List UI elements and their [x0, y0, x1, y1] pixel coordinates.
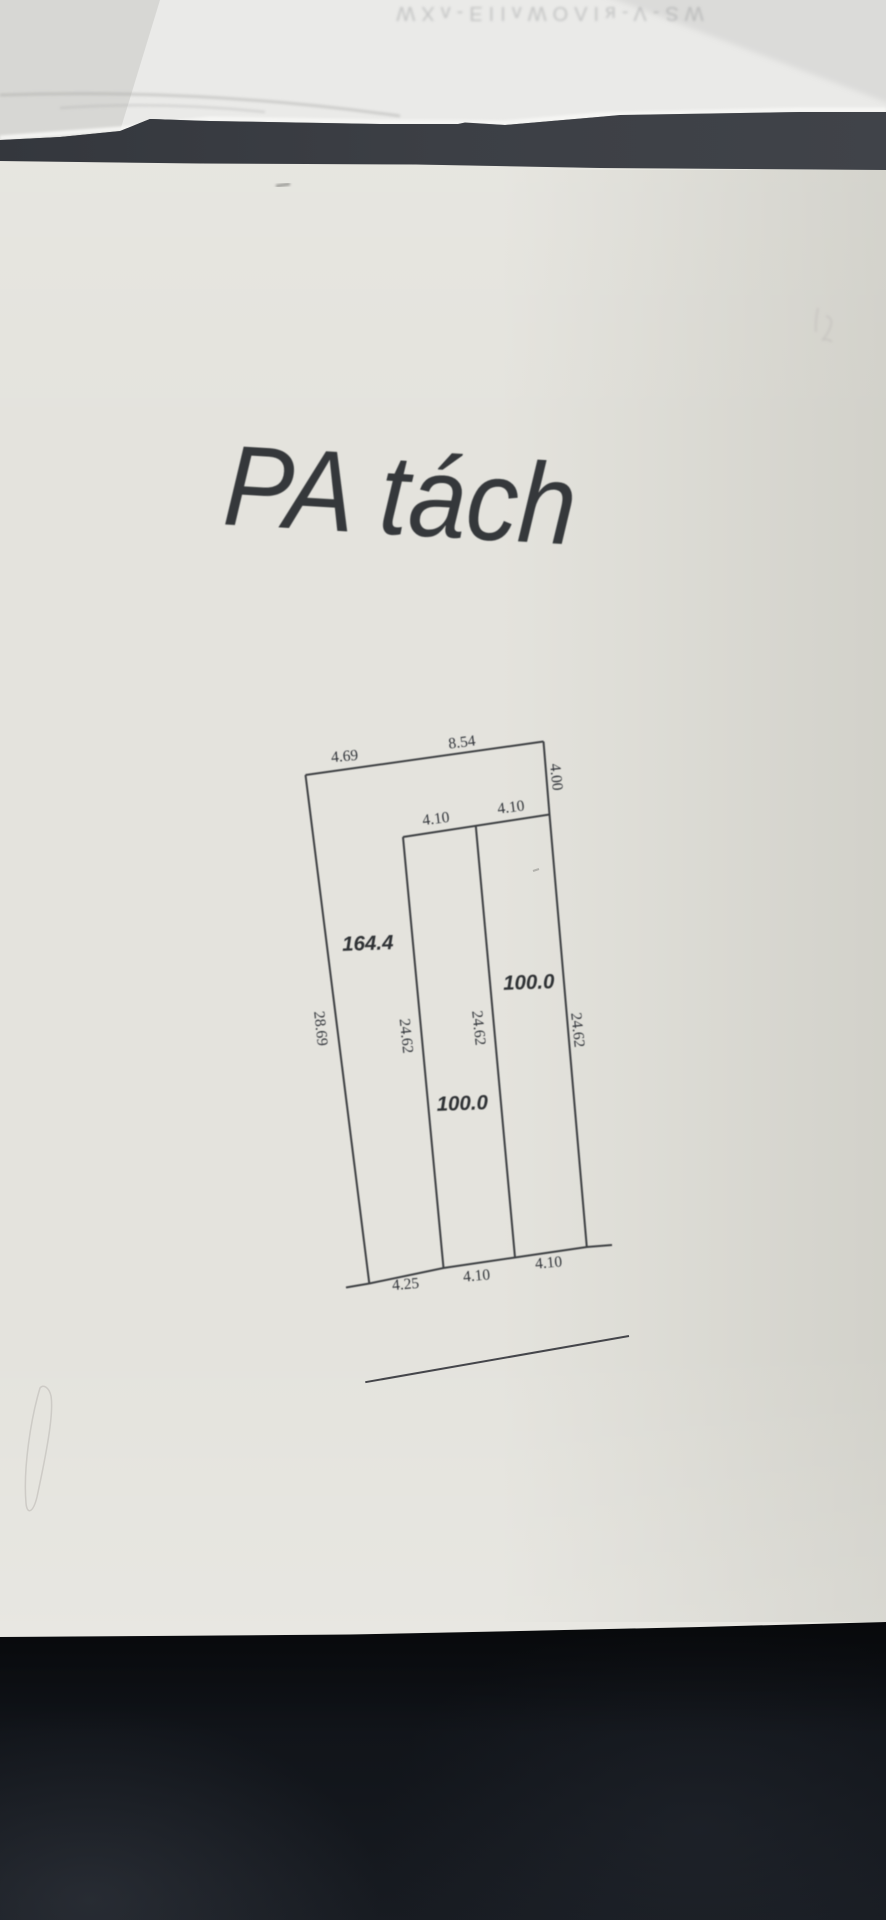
svg-text:4.69: 4.69: [330, 747, 359, 766]
svg-text:4.10: 4.10: [496, 797, 525, 817]
svg-text:24.62: 24.62: [468, 1010, 489, 1046]
svg-text:24.62: 24.62: [396, 1018, 417, 1054]
svg-text:WS-V-ʁIɅOWʌIIƎ-ʌXW: WS-V-ʁIɅOWʌIIƎ-ʌXW: [390, 2, 703, 24]
svg-text:4.00: 4.00: [546, 763, 566, 792]
svg-text:4.10: 4.10: [421, 809, 450, 829]
svg-text:PA tách: PA tách: [221, 422, 581, 570]
svg-text:4.10: 4.10: [534, 1253, 563, 1272]
svg-text:100.0: 100.0: [503, 970, 556, 995]
svg-text:24.62: 24.62: [567, 1012, 588, 1048]
svg-text:100.0: 100.0: [436, 1091, 489, 1116]
svg-text:164.4: 164.4: [342, 931, 395, 956]
svg-text:4.25: 4.25: [391, 1275, 420, 1294]
svg-text:8.54: 8.54: [447, 732, 476, 752]
svg-text:4.10: 4.10: [462, 1266, 491, 1285]
